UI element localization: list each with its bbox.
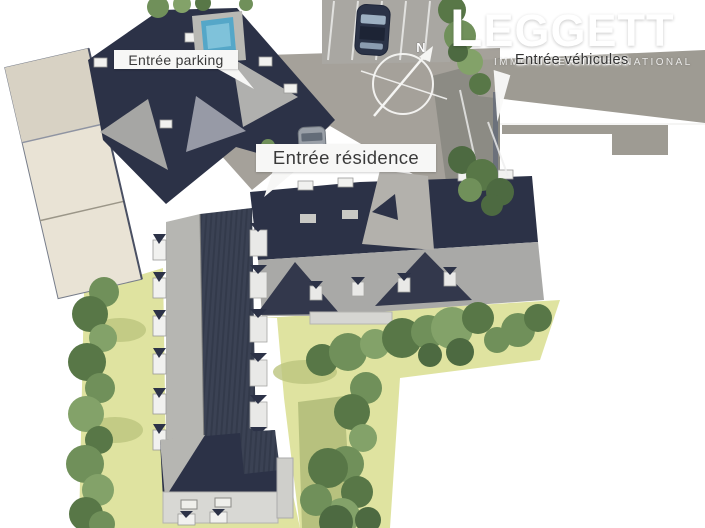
label-entree-parking: Entrée parking bbox=[114, 50, 238, 69]
site-plan-rendering: N LEGGETT IMMOBILIER INTERNATIONAL Entré… bbox=[0, 0, 705, 528]
terrace-strip bbox=[310, 312, 392, 324]
south-wing-roof bbox=[153, 208, 267, 458]
label-entree-residence-text: Entrée résidence bbox=[273, 147, 419, 169]
parked-car bbox=[354, 4, 390, 56]
label-entree-vehicules: Entrée véhicules bbox=[515, 52, 629, 68]
south-building bbox=[160, 430, 293, 525]
aerial-site-plan: N bbox=[0, 0, 705, 528]
compass-north-label: N bbox=[416, 40, 425, 55]
label-entree-vehicules-text: Entrée véhicules bbox=[515, 52, 629, 68]
leggett-logo-text: LEGGETT bbox=[450, 2, 705, 56]
label-entree-parking-text: Entrée parking bbox=[128, 52, 223, 68]
label-entree-residence: Entrée résidence bbox=[256, 144, 436, 172]
